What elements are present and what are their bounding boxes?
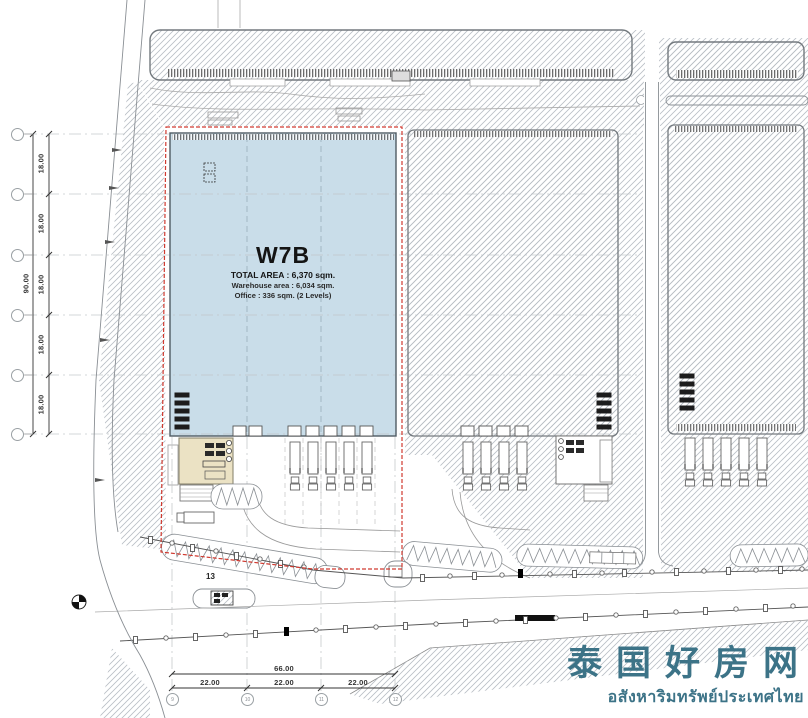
- far-right-warehouse: [668, 125, 804, 434]
- grid-bubble-left-1: [11, 128, 24, 141]
- entrance-islands: [314, 561, 412, 590]
- guard-house-island: [193, 589, 255, 608]
- watermark: 泰国好房网 อสังหาริมทรัพย์ประเทศไทย: [567, 645, 804, 710]
- warehouse-dock-wall: [172, 134, 394, 140]
- site-plan-page: W7B TOTAL AREA : 6,370 sqm. Warehouse ar…: [0, 0, 808, 718]
- grid-bubble-left-4: [11, 309, 24, 322]
- dim-left-seg-2: 18.00: [37, 209, 46, 239]
- top-left-building: [150, 0, 632, 86]
- grid-bubble-left-6: [11, 428, 24, 441]
- warehouse-area-label: Warehouse area : 6,034 sqm.: [170, 281, 396, 290]
- dim-left-seg-3: 18.00: [37, 270, 46, 300]
- grid-bubble-11: 11: [315, 693, 328, 706]
- grid-bubble-left-3: [11, 249, 24, 262]
- dim-bottom-seg-3: 22.00: [336, 678, 380, 687]
- road-marker-label: 13: [206, 572, 215, 581]
- total-area-label: TOTAL AREA : 6,370 sqm.: [170, 270, 396, 280]
- grid-bubble-10: 10: [241, 693, 254, 706]
- watermark-title: 泰国好房网: [567, 645, 808, 683]
- dim-left-seg-5: 18.00: [37, 390, 46, 420]
- dim-bottom-total: 66.00: [262, 664, 306, 673]
- site-plan-drawing: [0, 0, 808, 718]
- dim-left-seg-1: 18.00: [37, 149, 46, 179]
- survey-marker-icon: [72, 595, 86, 609]
- dim-left-total: 90.00: [22, 269, 31, 299]
- grid-bubble-left-2: [11, 188, 24, 201]
- dim-bottom-seg-2: 22.00: [262, 678, 306, 687]
- warehouse-title-block: W7B TOTAL AREA : 6,370 sqm. Warehouse ar…: [170, 243, 396, 300]
- dim-left-seg-4: 18.00: [37, 330, 46, 360]
- dim-bottom-seg-1: 22.00: [188, 678, 232, 687]
- unit-label: W7B: [170, 243, 396, 267]
- grid-bubble-left-5: [11, 369, 24, 382]
- grid-bubble-12: 12: [389, 693, 402, 706]
- office-area-label: Office : 336 sqm. (2 Levels): [170, 291, 396, 300]
- grid-bubble-9: 9: [166, 693, 179, 706]
- watermark-subtitle: อสังหาริมทรัพย์ประเทศไทย: [567, 685, 804, 710]
